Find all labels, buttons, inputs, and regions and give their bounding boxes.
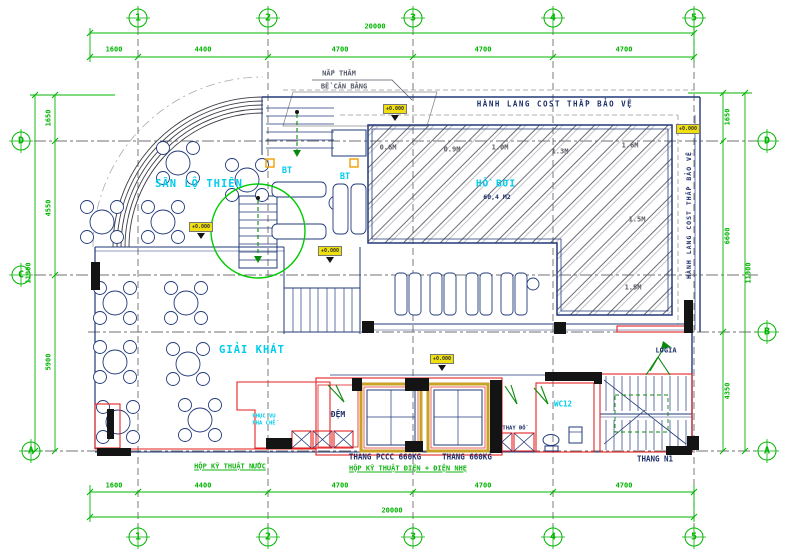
pool-depth-4: 1.3M [552, 149, 569, 156]
grid-bubble-row-d-left: D [12, 132, 31, 151]
plan-linework [0, 0, 790, 556]
dim-bottom-seg-2: 4400 [195, 483, 212, 490]
floor-plan-canvas: 20000 1600 4400 4700 4700 4700 1600 4400… [0, 0, 790, 556]
dim-left-seg-1: 1650 [46, 110, 53, 127]
grid-bubble-col2-top: 2 [259, 9, 278, 28]
dim-bottom-seg-5: 4700 [616, 483, 633, 490]
callout-nap-tham: NẮP THĂM [322, 71, 356, 78]
dim-bottom-seg-3: 4700 [332, 483, 349, 490]
dim-top-seg-5: 4700 [616, 47, 633, 54]
label-hop-ky-thuat-dien: HỘP KỸ THUẬT ĐIỆN + ĐIỆN NHẸ [349, 466, 467, 473]
label-thang-pccc: THANG PCCC 660KG [349, 453, 421, 461]
room-label-ho-boi: HỒ BƠI [476, 179, 516, 189]
pool-depth-6: 1.5M [629, 217, 646, 224]
pool-depth-7: 1.5M [625, 285, 642, 292]
room-label-logia: LOGIA [655, 348, 676, 355]
grid-bubble-col2-bottom: 2 [259, 528, 278, 547]
room-label-giai-khat: GIẢI KHÁT [219, 345, 285, 356]
elevation-tag-2: +0.000 [676, 124, 700, 134]
dim-right-seg-3: 4350 [725, 383, 732, 400]
dim-top-seg-4: 4700 [475, 47, 492, 54]
elevation-tag-3: +0.000 [189, 222, 213, 232]
room-label-wc12: WC12 [554, 400, 572, 408]
corridor-label-right: HÀNH LANG COST THẤP BẢO VỆ [686, 151, 693, 279]
callout-be-can-bang: BỂ CÂN BẰNG [321, 84, 367, 91]
room-label-san-lo-thien: SÂN LỘ THIÊN [155, 179, 243, 190]
light-fixtures [266, 159, 358, 167]
pool-depth-5: 1.6M [622, 143, 639, 150]
dim-bottom-total: 20000 [381, 508, 402, 515]
grid-bubble-col1-bottom: 1 [129, 528, 148, 547]
grid-bubble-col4-bottom: 4 [544, 528, 563, 547]
elevation-tag-1: +0.000 [383, 104, 407, 114]
grid-bubble-row-b-right: B [758, 323, 777, 342]
grid-bubble-row-a-left: A [22, 442, 41, 461]
dim-bottom-seg-1: 1600 [106, 483, 123, 490]
label-bt-1: BT [282, 167, 292, 176]
dim-top-seg-2: 4400 [195, 47, 212, 54]
dim-top-seg-1: 1600 [106, 47, 123, 54]
grid-bubble-row-a-right: A [758, 442, 777, 461]
grid-bubble-col4-top: 4 [544, 9, 563, 28]
label-thang-2: THANG 660KG [442, 453, 492, 461]
label-phuc-vu: PHỤC VỤ [252, 414, 275, 420]
grid-bubble-col5-bottom: 5 [685, 528, 704, 547]
corridor-label-top: HÀNH LANG COST THẤP BẢO VỆ [477, 100, 633, 108]
grid-bubble-col5-top: 5 [685, 9, 704, 28]
pool-depth-1: 0.6M [380, 145, 397, 152]
dim-bottom-seg-4: 4700 [475, 483, 492, 490]
dim-left-seg-3: 5900 [46, 354, 53, 371]
grid-bubble-col3-top: 3 [404, 9, 423, 28]
grid-bubble-row-d-right: D [758, 132, 777, 151]
label-bt-2: BT [340, 173, 350, 182]
dim-right-seg-1: 1650 [725, 109, 732, 126]
dim-left-seg-2: 4550 [46, 200, 53, 217]
grid-bubble-row-c-left: C [12, 266, 31, 285]
pool-depth-3: 1.0M [492, 145, 509, 152]
label-pha-che: PHA CHẾ [252, 421, 275, 427]
room-area-ho-boi: 60,4 M2 [483, 194, 510, 201]
dim-top-seg-3: 4700 [332, 47, 349, 54]
grid-bubble-col3-bottom: 3 [404, 528, 423, 547]
grid-bubble-col1-top: 1 [129, 9, 148, 28]
elevation-tag-4: +0.000 [318, 246, 342, 256]
dim-top-total: 20000 [364, 24, 385, 31]
room-label-dem: ĐỆM [331, 411, 345, 419]
dim-right-total: 11900 [746, 262, 753, 283]
elevator-shafts [361, 384, 488, 451]
room-label-thay-do: THAY ĐỒ [502, 426, 525, 432]
elevation-tag-5: +0.000 [430, 354, 454, 364]
label-thang-n1: THANG N1 [637, 455, 673, 463]
dim-right-seg-2: 6600 [725, 228, 732, 245]
pool-depth-2: 0.9M [444, 147, 461, 154]
label-hop-ky-thuat-nuoc: HỘP KỸ THUẬT NƯỚC [194, 464, 266, 471]
